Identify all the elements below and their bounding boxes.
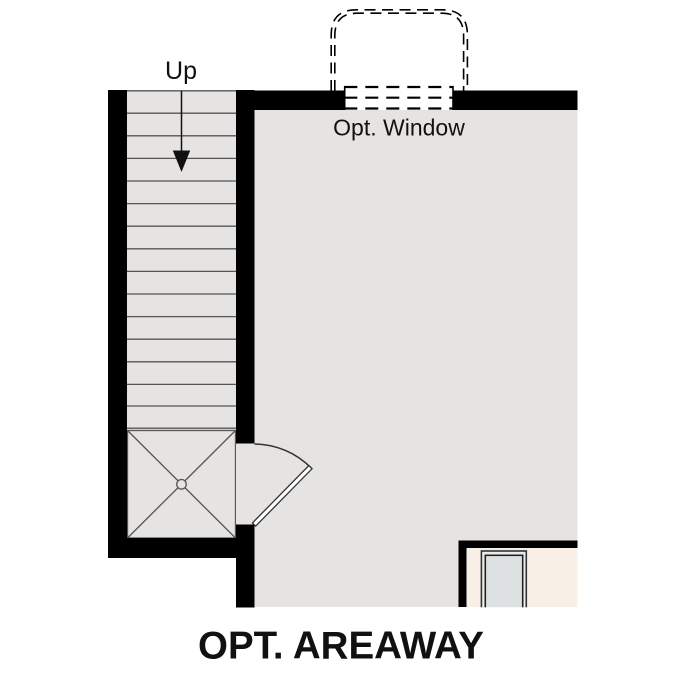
svg-text:Up: Up [165,57,197,85]
svg-text:Opt. Window: Opt. Window [333,115,465,141]
svg-text:OPT. AREAWAY: OPT. AREAWAY [198,625,484,668]
